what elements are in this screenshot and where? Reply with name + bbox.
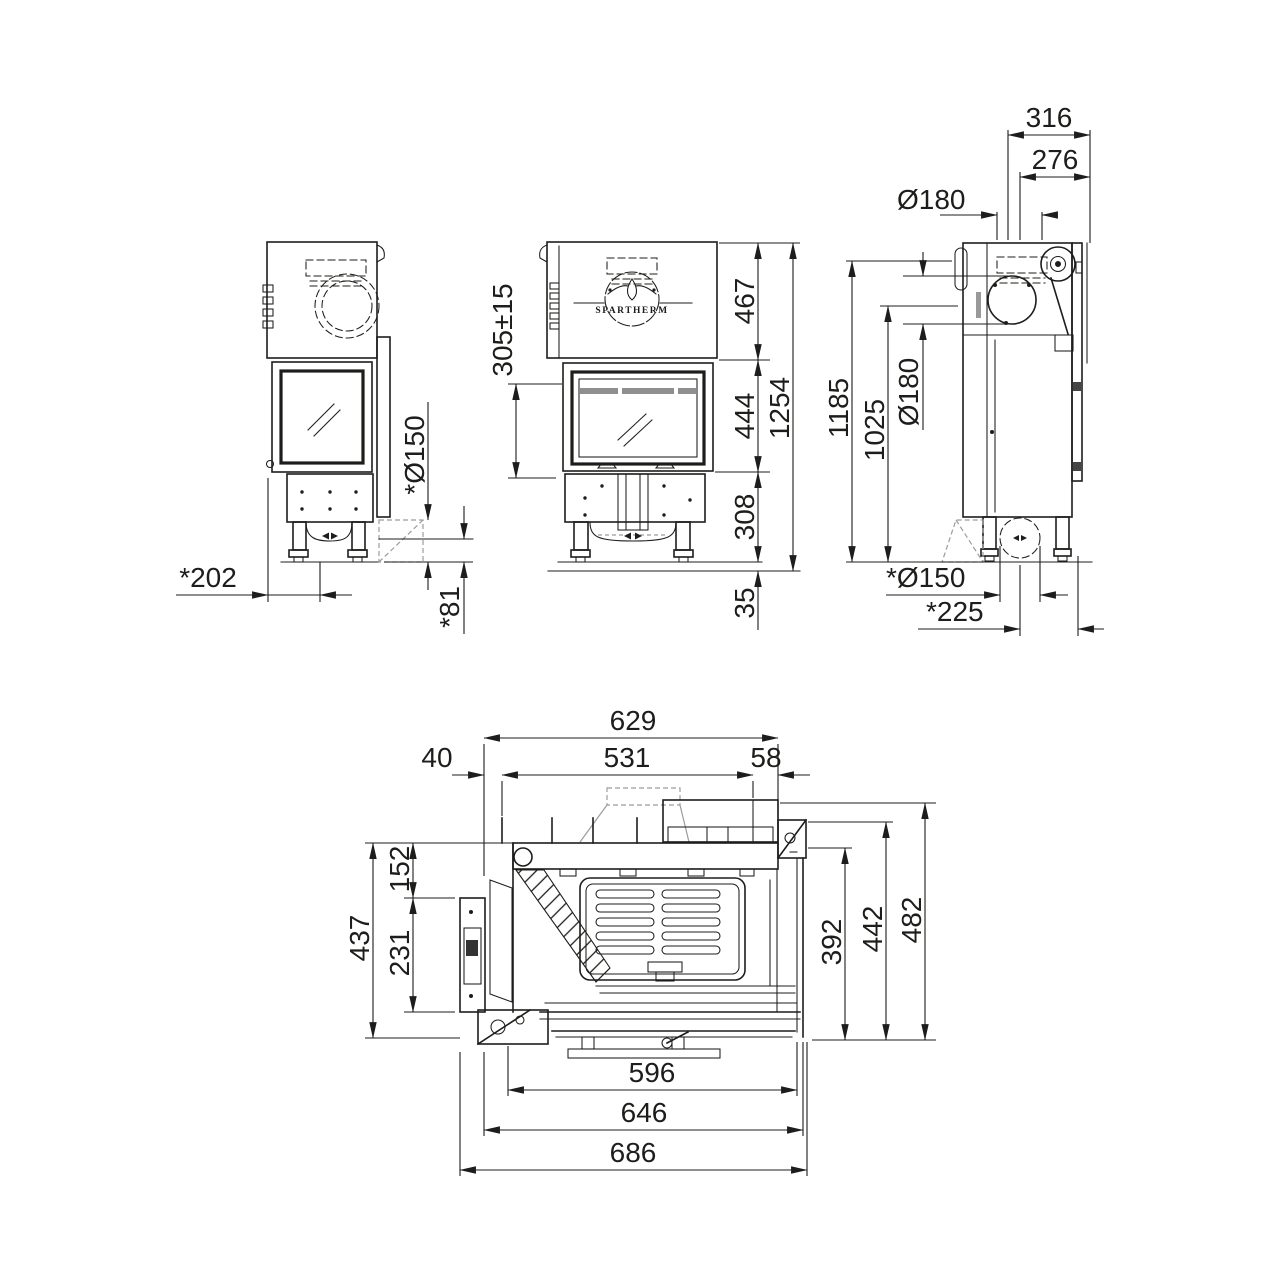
dim-right-height-total-label: 1185 xyxy=(823,378,854,438)
dim-front-total-height-label: 1254 xyxy=(764,377,795,439)
dim-front-base-height-label: 308 xyxy=(729,494,760,541)
dim-right-depth-top-label: 316 xyxy=(1026,102,1073,133)
dim-right-flue-dia-side-label: Ø180 xyxy=(893,358,924,427)
dim-plan-width-total-label: 686 xyxy=(610,1137,657,1168)
dim-front-floor-gap-label: 35 xyxy=(729,587,760,618)
dim-plan-depth-inner-label: 531 xyxy=(604,742,651,773)
dim-front-hood-height-label: 467 xyxy=(729,278,760,325)
dim-plan-width-mid-label: 442 xyxy=(857,906,888,953)
dim-plan-width-inner-label: 392 xyxy=(816,919,847,966)
dim-plan-width-body-label: 646 xyxy=(621,1097,668,1128)
latch-detail xyxy=(976,292,981,318)
brand-logo-text: SPARTHERM xyxy=(595,306,668,316)
dim-plan-rear-edge-label: 58 xyxy=(750,742,781,773)
dim-plan-depth-front-seg-label: 152 xyxy=(384,846,415,893)
dim-plan-depth-body-label: 629 xyxy=(610,705,657,736)
dim-left-rear-offset-label: *202 xyxy=(179,562,237,593)
dim-plan-width-glass-label: 596 xyxy=(629,1057,676,1088)
dim-right-flue-center-offset-label: 276 xyxy=(1032,144,1079,175)
dim-left-flue-rear-label: *Ø150 xyxy=(399,415,430,494)
dim-plan-width-outer-label: 482 xyxy=(896,897,927,944)
dim-front-door-height-label: 444 xyxy=(729,393,760,440)
glass-reflection-band xyxy=(580,388,618,394)
dim-right-flue-rear-dia-label: *Ø150 xyxy=(886,562,965,593)
dim-left-plinth-height-label: *81 xyxy=(434,586,465,628)
dim-right-flue-rear-center-label: *225 xyxy=(926,596,984,627)
dim-right-height-flue-axis-label: 1025 xyxy=(859,399,890,461)
dim-plan-front-edge-label: 40 xyxy=(421,742,452,773)
dim-front-hood-range-label: 305±15 xyxy=(487,283,518,376)
technical-drawing-canvas: *202 *Ø150 *81 xyxy=(0,0,1280,1280)
dim-right-flue-dia-top-label: Ø180 xyxy=(897,184,966,215)
dim-plan-depth-left-label: 437 xyxy=(344,915,375,962)
page-background xyxy=(0,0,1280,1280)
dim-plan-depth-door-seg-label: 231 xyxy=(384,930,415,977)
